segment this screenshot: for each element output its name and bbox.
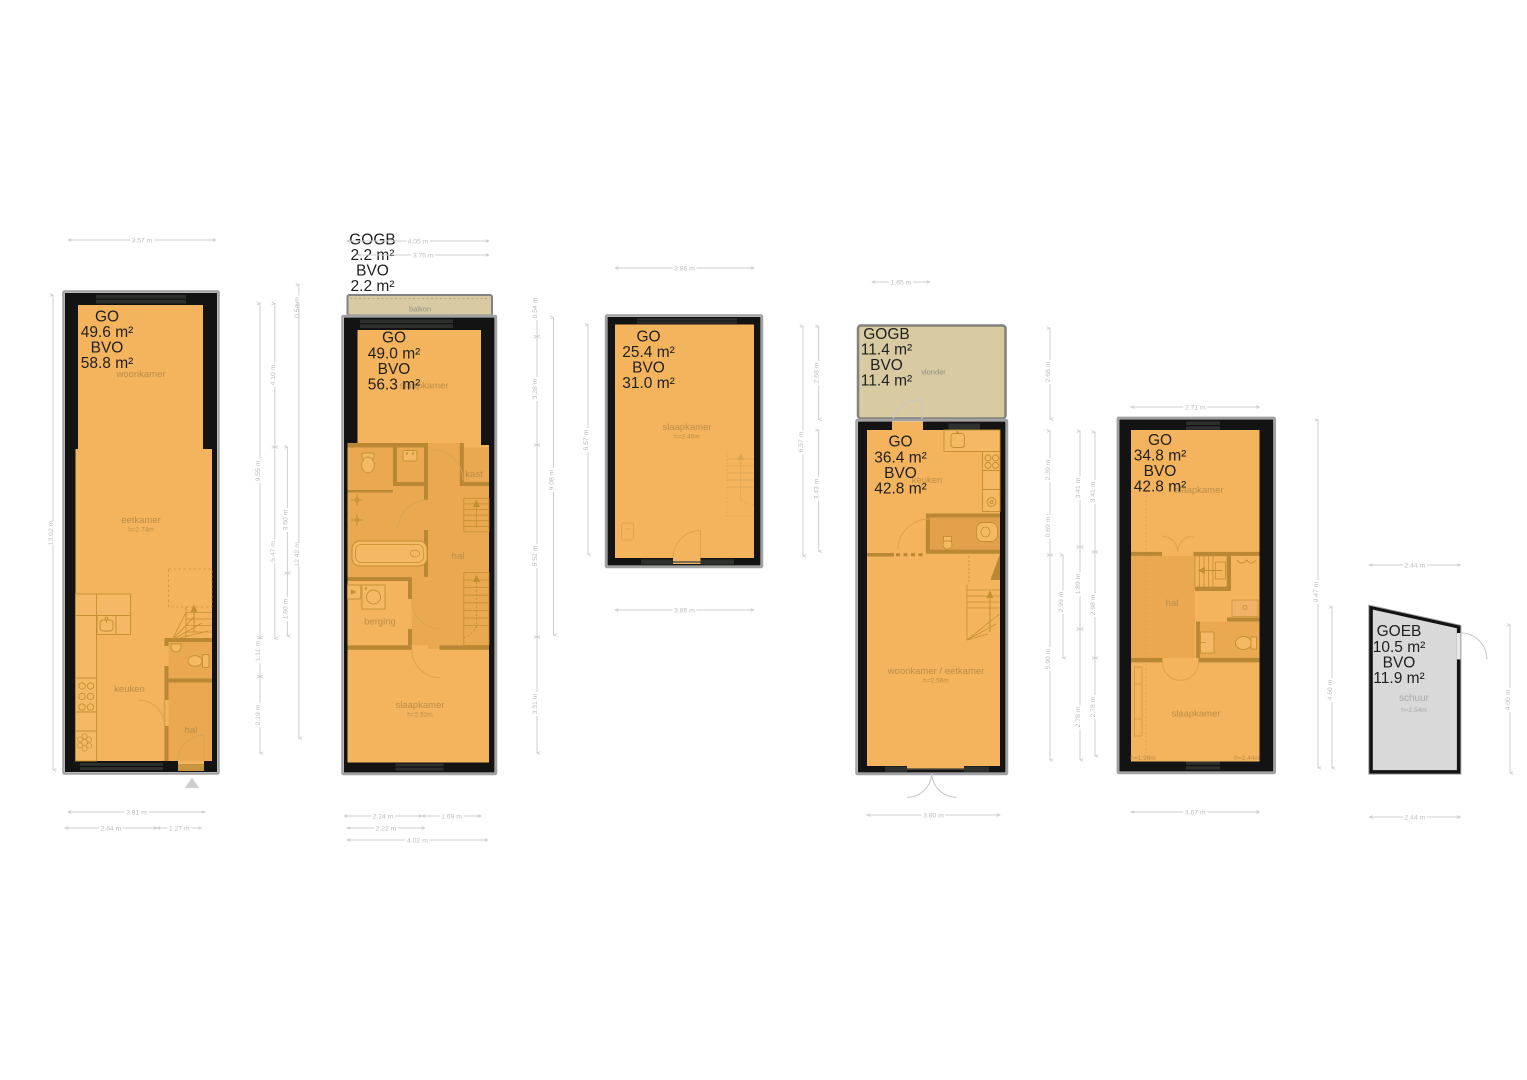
svg-text:4.60 m: 4.60 m — [1327, 679, 1334, 700]
svg-text:3.60 m: 3.60 m — [282, 509, 289, 530]
svg-text:5.52 m: 5.52 m — [532, 545, 539, 566]
svg-text:hal: hal — [452, 551, 465, 562]
svg-text:keuken: keuken — [114, 684, 145, 695]
svg-text:schuur: schuur — [1399, 693, 1430, 704]
svg-text:6.57 m: 6.57 m — [583, 429, 590, 450]
svg-text:3.31 m: 3.31 m — [532, 693, 539, 714]
svg-text:woonkamer / eetkamer: woonkamer / eetkamer — [887, 666, 985, 677]
svg-text:5.90 m: 5.90 m — [1045, 648, 1052, 669]
svg-text:1.11 m: 1.11 m — [255, 641, 262, 662]
svg-text:4.05 m: 4.05 m — [408, 239, 429, 246]
svg-text:1.80 m: 1.80 m — [282, 598, 289, 619]
svg-text:3.67 m: 3.67 m — [1185, 810, 1206, 817]
svg-text:3.80 m: 3.80 m — [923, 813, 944, 820]
svg-text:hal: hal — [185, 725, 198, 736]
svg-text:0.54 m: 0.54 m — [532, 297, 539, 318]
svg-text:3.41 m: 3.41 m — [1090, 481, 1097, 502]
svg-text:GOGB11.4 m²BVO11.4 m²: GOGB11.4 m²BVO11.4 m² — [861, 326, 912, 390]
svg-text:1.89 m: 1.89 m — [1075, 573, 1082, 594]
svg-text:2.64 m: 2.64 m — [101, 826, 122, 833]
svg-text:1.69 m: 1.69 m — [441, 814, 462, 821]
svg-text:0.69 m: 0.69 m — [1045, 516, 1052, 537]
svg-text:balkon: balkon — [409, 305, 431, 314]
svg-text:GOEB10.5 m²BVO11.9 m²: GOEB10.5 m²BVO11.9 m² — [1373, 623, 1426, 687]
svg-text:vlonder: vlonder — [921, 368, 946, 377]
svg-text:3.57 m: 3.57 m — [132, 238, 153, 245]
svg-text:4.00 m: 4.00 m — [1505, 689, 1512, 710]
svg-text:9.55 m: 9.55 m — [255, 460, 262, 481]
svg-text:3.86 m: 3.86 m — [674, 266, 695, 273]
svg-text:2.44 m: 2.44 m — [1404, 815, 1425, 822]
svg-text:9.08 m: 9.08 m — [549, 469, 556, 490]
svg-text:2.44 m: 2.44 m — [1404, 563, 1425, 570]
svg-text:3.86 m: 3.86 m — [674, 608, 695, 615]
svg-text:cv: cv — [626, 526, 630, 531]
svg-text:4.02 m: 4.02 m — [407, 838, 428, 845]
svg-text:2.71 m: 2.71 m — [1185, 405, 1206, 412]
svg-text:2.39 m: 2.39 m — [1045, 459, 1052, 480]
svg-text:1.27 m: 1.27 m — [169, 826, 190, 833]
svg-text:5.47 m: 5.47 m — [270, 541, 277, 562]
svg-text:slaapkamer: slaapkamer — [395, 700, 444, 711]
svg-text:2.78 m: 2.78 m — [1090, 696, 1097, 717]
svg-text:3.43 m: 3.43 m — [814, 478, 821, 499]
svg-text:slaapkamer: slaapkamer — [662, 422, 711, 433]
svg-text:berging: berging — [364, 617, 396, 628]
svg-text:2.68 m: 2.68 m — [814, 362, 821, 383]
svg-text:kast: kast — [465, 469, 483, 480]
svg-text:4.10 m: 4.10 m — [270, 364, 277, 385]
svg-text:hal: hal — [1166, 598, 1179, 609]
svg-text:2.19 m: 2.19 m — [255, 704, 262, 725]
svg-text:h=2.52m: h=2.52m — [407, 712, 432, 719]
svg-text:9.47 m: 9.47 m — [1313, 581, 1320, 602]
svg-text:3.41 m: 3.41 m — [1075, 477, 1082, 498]
svg-text:eetkamer: eetkamer — [121, 515, 161, 526]
svg-text:13.02 m: 13.02 m — [48, 520, 55, 545]
svg-text:3.28 m: 3.28 m — [532, 378, 539, 399]
svg-text:2.78 m: 2.78 m — [1075, 706, 1082, 727]
svg-text:3.91 m: 3.91 m — [126, 810, 147, 817]
svg-text:2.24 m: 2.24 m — [373, 814, 394, 821]
svg-text:h=2.74m: h=2.74m — [128, 527, 153, 534]
svg-text:0.54 m: 0.54 m — [294, 297, 301, 318]
svg-text:2.22 m: 2.22 m — [376, 826, 397, 833]
svg-text:2.68 m: 2.68 m — [1045, 361, 1052, 382]
svg-text:h=2.54m: h=2.54m — [1401, 707, 1426, 714]
svg-text:6.57 m: 6.57 m — [798, 431, 805, 452]
svg-text:slaapkamer: slaapkamer — [1171, 709, 1220, 720]
svg-text:1.65 m: 1.65 m — [891, 280, 912, 287]
svg-text:2.99 m: 2.99 m — [1058, 591, 1065, 612]
svg-text:12.42 m: 12.42 m — [294, 542, 301, 567]
svg-text:h=2.46m: h=2.46m — [674, 434, 699, 441]
svg-text:h=2.56m: h=2.56m — [923, 678, 948, 685]
svg-text:h=2.44m: h=2.44m — [1234, 755, 1259, 762]
svg-text:h=1.98m: h=1.98m — [1130, 755, 1155, 762]
svg-text:2.98 m: 2.98 m — [1090, 594, 1097, 615]
svg-text:3.75 m: 3.75 m — [413, 253, 434, 260]
